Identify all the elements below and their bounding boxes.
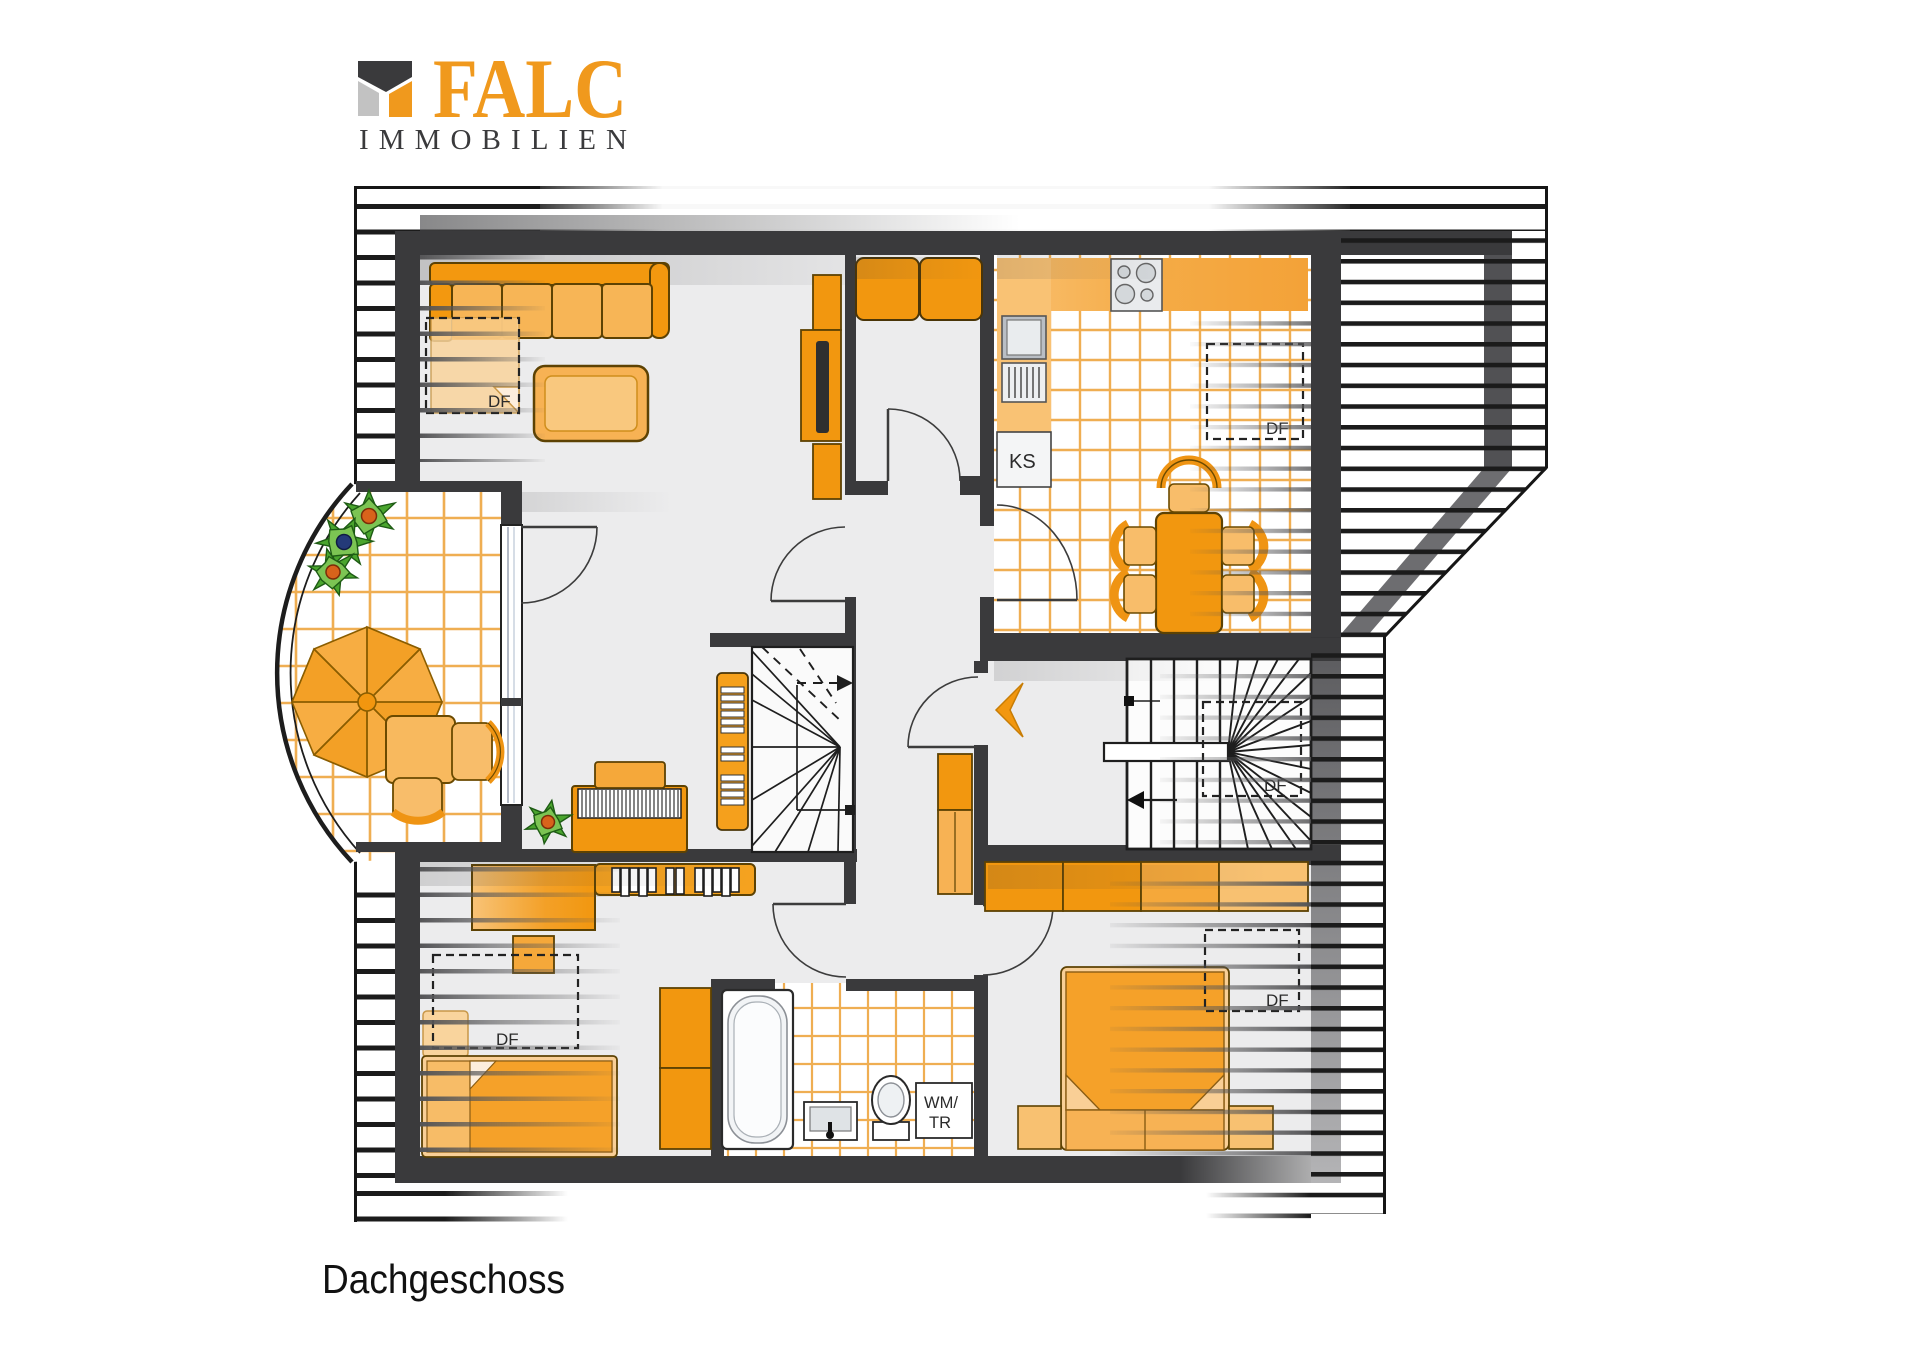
svg-text:KS: KS	[1009, 451, 1036, 473]
svg-text:TR: TR	[929, 1114, 951, 1132]
svg-text:Dachgeschoss: Dachgeschoss	[322, 1256, 565, 1302]
svg-text:FALC: FALC	[433, 42, 627, 136]
svg-text:IMMOBILIEN: IMMOBILIEN	[359, 124, 627, 156]
svg-text:WM/: WM/	[924, 1094, 958, 1112]
